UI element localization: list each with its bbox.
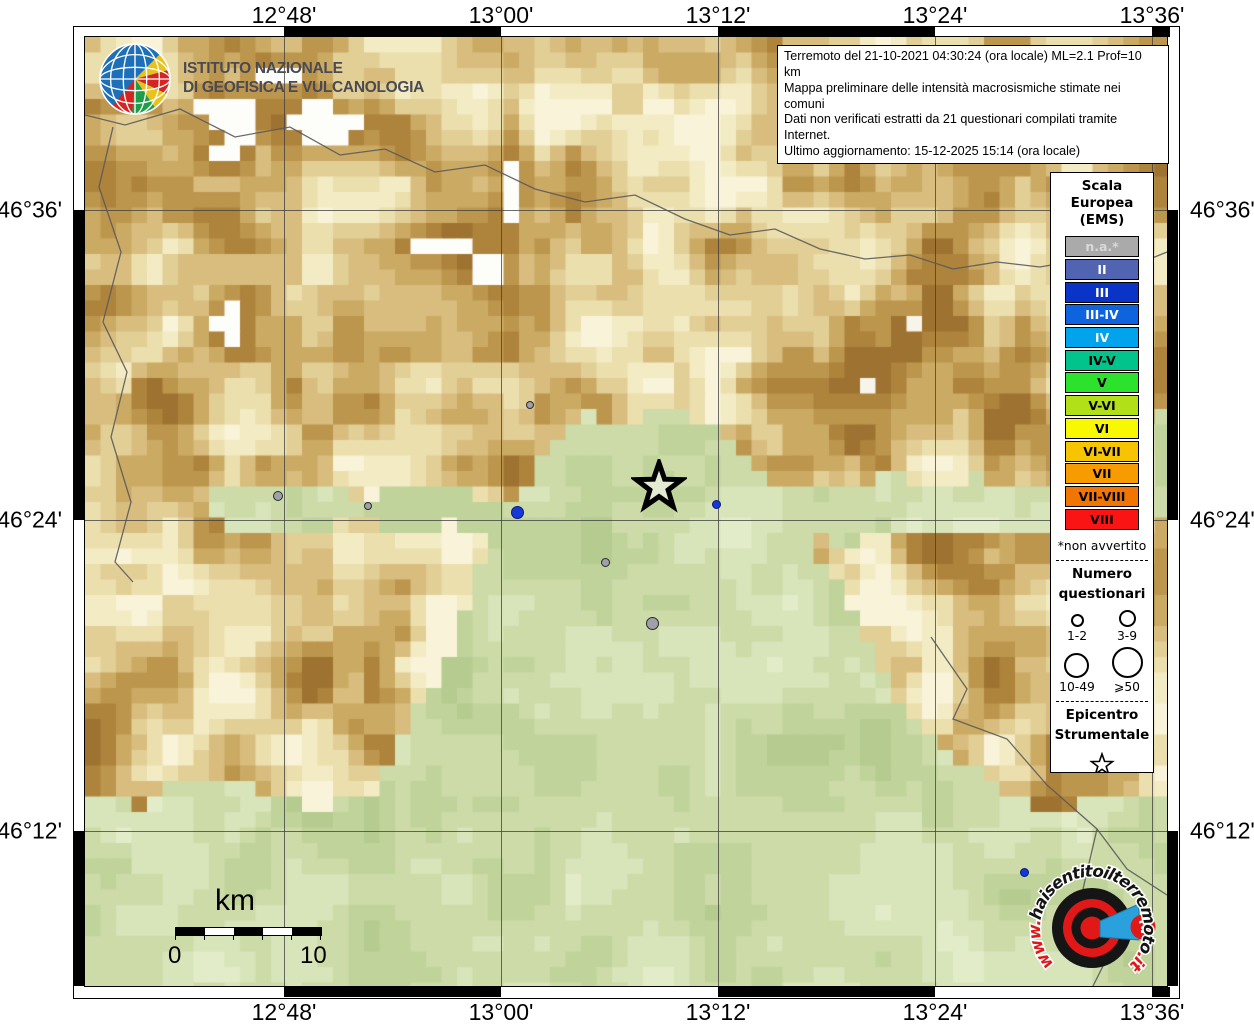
lat-label-left-1: 46°24': [0, 507, 62, 534]
size-circle-icon: [1112, 647, 1143, 678]
scale-segment: [205, 928, 234, 935]
info-line-event: Terremoto del 21-10-2021 04:30:24 (ora l…: [784, 49, 1162, 81]
legend-footnote: *non avvertito: [1058, 539, 1146, 553]
questionnaire-dot-blue-3: [511, 506, 524, 519]
neatline-black-segment: [74, 831, 84, 986]
lon-label-bottom-2: 13°12': [686, 999, 751, 1024]
neatline-black-segment: [74, 210, 84, 520]
scale-tick: [233, 936, 234, 940]
epicenter-heading: EpicentroStrumentale: [1055, 706, 1150, 745]
ems-chip-ii: II: [1065, 259, 1139, 280]
info-line-map-type: Mappa preliminare delle intensità macros…: [784, 81, 1162, 113]
map-canvas-area: [84, 36, 1168, 987]
questionnaire-size-key: 1-23-910-49⩾50: [1052, 610, 1152, 694]
lon-label-top-2: 13°12': [686, 2, 751, 29]
ems-chip-vii-viii: VII-VIII: [1065, 486, 1139, 507]
legend-separator: [1056, 560, 1148, 561]
size-circle-label: 3-9: [1117, 629, 1137, 643]
lat-label-right-1: 46°24': [1190, 507, 1254, 534]
ingv-logo: ISTITUTO NAZIONALE DI GEOFISICA E VULCAN…: [96, 40, 424, 118]
scale-segment: [292, 928, 321, 935]
questionnaire-size-key-3: ⩾50: [1112, 647, 1143, 694]
size-circle-label: ⩾50: [1114, 680, 1140, 694]
ingv-globe-icon: [96, 40, 174, 118]
ems-scale-chips: n.a.*IIIIIIII-IVIVIV-VVV-VIVIVI-VIIVIIVI…: [1065, 235, 1139, 532]
lat-label-right-0: 46°36': [1190, 197, 1254, 224]
questionnaire-dot-gray-5: [646, 617, 659, 630]
legend-panel: ScalaEuropea(EMS) n.a.*IIIIIIII-IVIVIV-V…: [1050, 172, 1154, 773]
questionnaire-size-key-0: 1-2: [1067, 614, 1087, 643]
ingv-line1: ISTITUTO NAZIONALE: [183, 60, 424, 79]
lon-label-top-0: 12°48': [252, 2, 317, 29]
questionnaire-size-key-1: 3-9: [1117, 610, 1137, 643]
ems-chip-vi-vii: VI-VII: [1065, 441, 1139, 462]
lon-label-bottom-1: 13°00': [469, 999, 534, 1024]
epicenter-star: [631, 459, 687, 515]
size-circle-label: 1-2: [1067, 629, 1087, 643]
ems-chip-vii: VII: [1065, 463, 1139, 484]
scale-end-label: 10: [300, 942, 327, 970]
lon-label-top-1: 13°00': [469, 2, 534, 29]
questionnaire-dot-gray-4: [601, 558, 610, 567]
size-circle-icon: [1071, 614, 1084, 627]
legend-title: ScalaEuropea(EMS): [1071, 178, 1134, 229]
lon-label-bottom-3: 13°24': [903, 999, 968, 1024]
admin-boundary-lines: [85, 37, 1167, 986]
ems-chip-vi: VI: [1065, 418, 1139, 439]
scale-tick: [175, 936, 176, 940]
scale-tick: [204, 936, 205, 940]
epicenter-star-icon: [1089, 752, 1115, 773]
ingv-wordmark: ISTITUTO NAZIONALE DI GEOFISICA E VULCAN…: [183, 60, 424, 98]
questionnaire-size-key-2: 10-49: [1059, 653, 1095, 694]
lon-label-top-3: 13°24': [903, 2, 968, 29]
lat-label-right-2: 46°12': [1190, 818, 1254, 845]
scale-tick: [291, 936, 292, 940]
lat-label-left-2: 46°12': [0, 818, 62, 845]
lon-label-bottom-0: 12°48': [252, 999, 317, 1024]
earthquake-info-box: Terremoto del 21-10-2021 04:30:24 (ora l…: [777, 45, 1169, 164]
ingv-macroseismic-map: { "info_box": { "line1": "Terremoto del …: [0, 0, 1254, 1024]
ems-chip-iii-iv: III-IV: [1065, 304, 1139, 325]
lat-label-left-0: 46°36': [0, 197, 62, 224]
neatline-black-segment: [1168, 210, 1178, 520]
ems-chip-v: V: [1065, 372, 1139, 393]
scale-unit-label: km: [215, 884, 255, 918]
legend-separator-2: [1056, 701, 1148, 702]
scale-tick: [320, 936, 321, 940]
ingv-line2: DI GEOFISICA E VULCANOLOGIA: [183, 79, 424, 98]
ems-chip-iv: IV: [1065, 327, 1139, 348]
ems-chip-v-vi: V-VI: [1065, 395, 1139, 416]
neatline-black-segment: [718, 987, 935, 997]
questionnaire-dot-gray-2: [526, 401, 534, 409]
questionnaire-dot-gray-1: [364, 502, 372, 510]
info-line-updated: Ultimo aggiornamento: 15-12-2025 15:14 (…: [784, 144, 1162, 160]
scale-segment: [263, 928, 292, 935]
ems-chip-iv-v: IV-V: [1065, 350, 1139, 371]
lon-label-top-4: 13°36': [1120, 2, 1185, 29]
scale-tick: [262, 936, 263, 940]
scale-segment: [234, 928, 263, 935]
info-line-data-source: Dati non verificati estratti da 21 quest…: [784, 112, 1162, 144]
scale-bar-segments: [175, 927, 322, 936]
neatline-black-segment: [284, 987, 501, 997]
scale-start-label: 0: [168, 942, 181, 970]
ems-chip-viii: VIII: [1065, 509, 1139, 530]
questionnaire-dot-gray-0: [273, 491, 283, 501]
size-circle-icon: [1064, 653, 1089, 678]
questionnaires-heading: Numeroquestionari: [1059, 565, 1146, 604]
size-circle-icon: [1119, 610, 1136, 627]
haisentito-site-logo: ? www.haisentitoilterremoto.it: [1012, 848, 1172, 1008]
size-circle-label: 10-49: [1059, 680, 1095, 694]
scale-segment: [176, 928, 205, 935]
ems-chip-n-a-: n.a.*: [1065, 236, 1139, 257]
ems-chip-iii: III: [1065, 282, 1139, 303]
questionnaire-dot-blue-6: [712, 500, 721, 509]
